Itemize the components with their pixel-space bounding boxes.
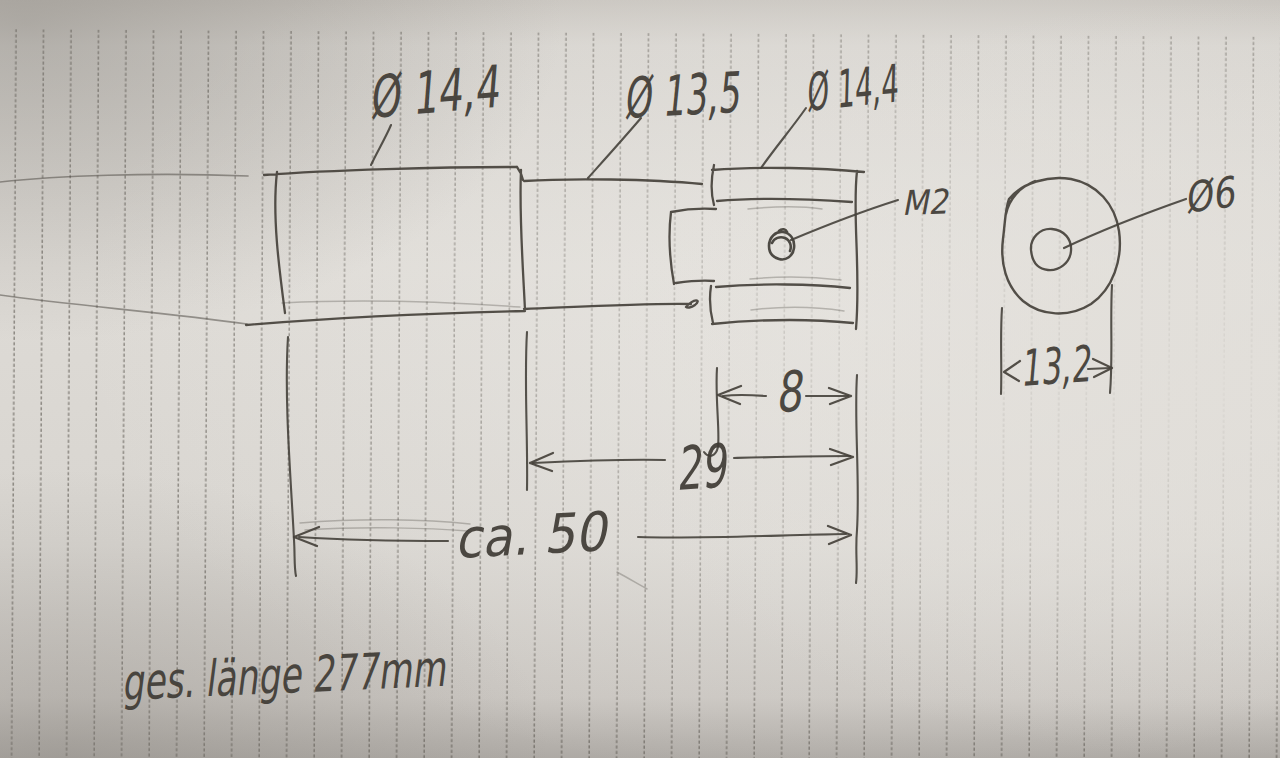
sketch-photo: Ø 14,4 Ø 13,5 Ø 14,4 M2 8 29 ca. 50 Ø6 1… (0, 0, 1280, 758)
dimension-29-label: 29 (673, 430, 731, 504)
dimension-13-2-label: 13,2 (1018, 335, 1094, 398)
sketch-canvas: Ø 14,4 Ø 13,5 Ø 14,4 M2 8 29 ca. 50 Ø6 1… (0, 0, 1280, 758)
diameter-label-section2: Ø 13,5 (621, 60, 742, 131)
diameter-label-section3: Ø 14,4 (802, 54, 901, 123)
diameter-label-section1: Ø 14,4 (365, 53, 502, 132)
thread-label-m2: M2 (901, 181, 951, 223)
dimension-ca50-label: ca. 50 (452, 500, 611, 571)
hole-diameter-label: Ø6 (1181, 167, 1240, 223)
